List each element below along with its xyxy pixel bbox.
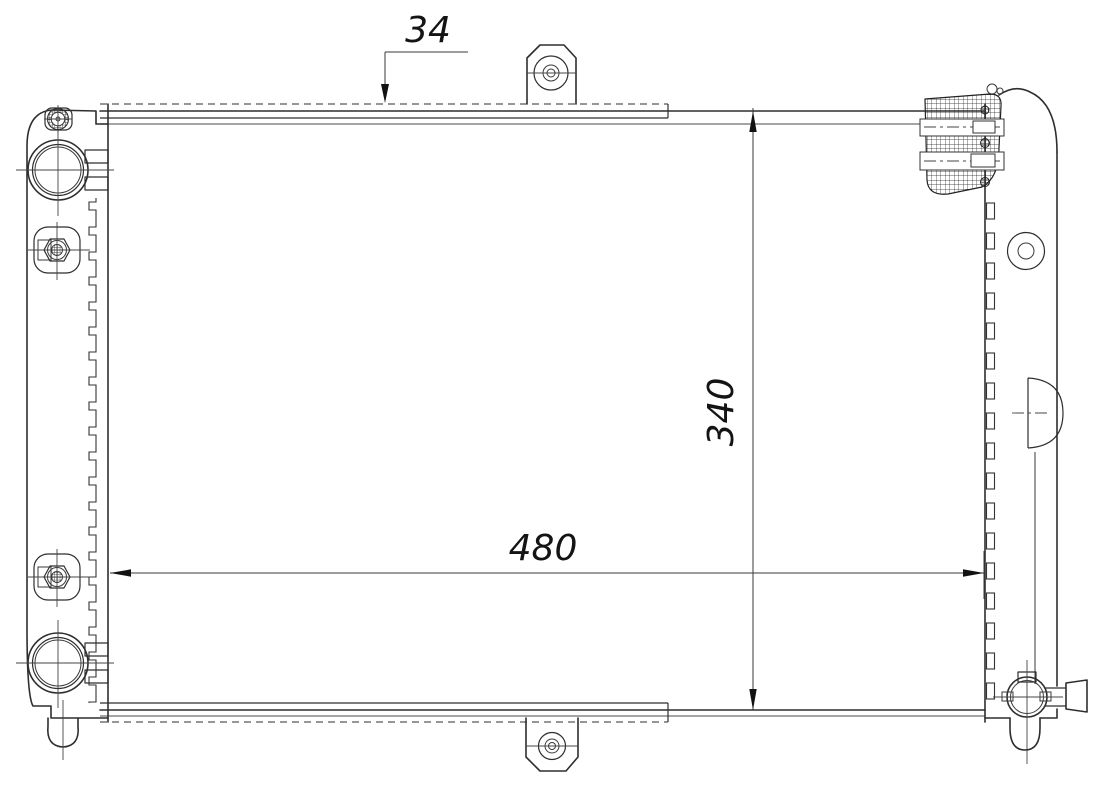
hex-fitting-lower [28,549,90,607]
dimension-height-value: 340 [701,378,742,447]
dimension-depth-34: 34 [381,10,468,103]
block-bolt-icon [981,106,989,114]
radiator-technical-drawing: 34 340 480 [0,0,1100,789]
arrow-left-icon [110,569,131,576]
dimension-width-value: 480 [509,528,578,569]
arrow-down-icon [381,84,389,103]
block-bolt-icon [981,139,990,148]
filler-fin-block [920,84,1004,194]
drain-plug [993,660,1087,764]
port-step-lower [85,177,108,190]
core-bottom-plate [100,703,985,722]
right-side-plate [985,104,996,722]
hex-fitting-upper [28,222,90,280]
inlet-port-top [16,126,114,216]
left-plate-serration [88,198,97,703]
arrow-right-icon [963,569,984,576]
right-tank-top-outline [999,89,1057,152]
right-tank [920,84,1087,764]
left-mounting-foot [48,700,78,760]
right-plate-serration [985,198,996,702]
dimension-depth-value: 34 [405,10,451,51]
arrow-down-icon [749,689,756,710]
filler-clip-icon [997,88,1003,94]
left-tank [16,105,114,760]
bottom-mounting-bracket [526,718,578,771]
d-shaped-bulge [1012,378,1063,448]
drawing-canvas: 34 340 480 [0,0,1100,789]
dimension-width-480: 480 [110,528,984,599]
left-side-plate [88,104,108,722]
dimension-height-340: 340 [701,108,757,710]
block-bolt-icon [981,178,990,187]
right-tank-boss [1008,233,1045,270]
arrow-up-icon [749,111,756,132]
right-mounting-foot [1010,718,1040,750]
filler-clip-icon [987,84,997,94]
port-step-upper [85,150,108,163]
top-mounting-bracket [527,45,576,104]
core-top-plate [100,104,985,124]
